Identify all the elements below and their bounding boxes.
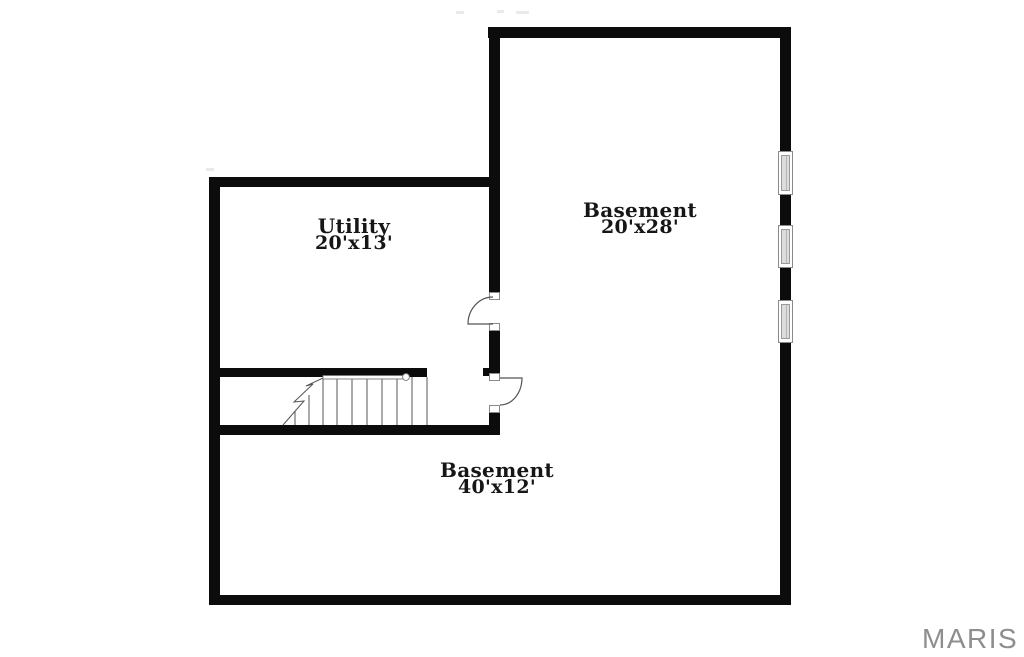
window-pane	[781, 229, 790, 264]
maris-watermark: MARIS	[922, 623, 1018, 655]
floor-plan: Utility 20'x13' Basement 20'x28' Basemen…	[0, 0, 1024, 657]
door-jamb	[489, 373, 500, 381]
scan-artifact	[497, 10, 504, 13]
utility-top-wall	[209, 177, 500, 187]
window-icon	[778, 225, 793, 268]
window-icon	[778, 300, 793, 343]
room-dimensions: 40'x12'	[397, 479, 597, 496]
center-wall-middle	[489, 331, 500, 373]
room-dimensions: 20'x28'	[540, 219, 740, 236]
stair-break-line	[283, 378, 323, 425]
exterior-wall-left	[209, 177, 220, 605]
door-swing-icon	[500, 378, 522, 405]
window-pane	[781, 155, 790, 191]
plan-symbols-layer	[0, 0, 1024, 657]
window-mullion	[786, 305, 787, 338]
scan-artifact	[206, 168, 214, 171]
exterior-wall-bottom	[209, 595, 791, 605]
door-jamb	[489, 405, 500, 413]
room-dimensions: 20'x13'	[254, 235, 454, 252]
window-icon	[778, 151, 793, 195]
stair-hall-bottom-wall	[209, 425, 500, 435]
scan-artifact	[516, 11, 529, 14]
staircase-icon	[295, 377, 427, 425]
room-label-basement-main: Basement 20'x28'	[540, 202, 740, 236]
center-wall-upper	[489, 27, 500, 292]
door-jamb	[489, 323, 500, 331]
room-label-basement-lower: Basement 40'x12'	[397, 462, 597, 496]
door-swing-icon	[468, 297, 493, 324]
stair-hall-top-wall	[209, 368, 427, 377]
window-mullion	[786, 156, 787, 190]
scan-artifact	[456, 11, 464, 14]
window-pane	[781, 304, 790, 339]
door-jamb	[489, 292, 500, 300]
window-mullion	[786, 230, 787, 263]
exterior-wall-top	[488, 27, 791, 38]
room-label-utility: Utility 20'x13'	[254, 218, 454, 252]
